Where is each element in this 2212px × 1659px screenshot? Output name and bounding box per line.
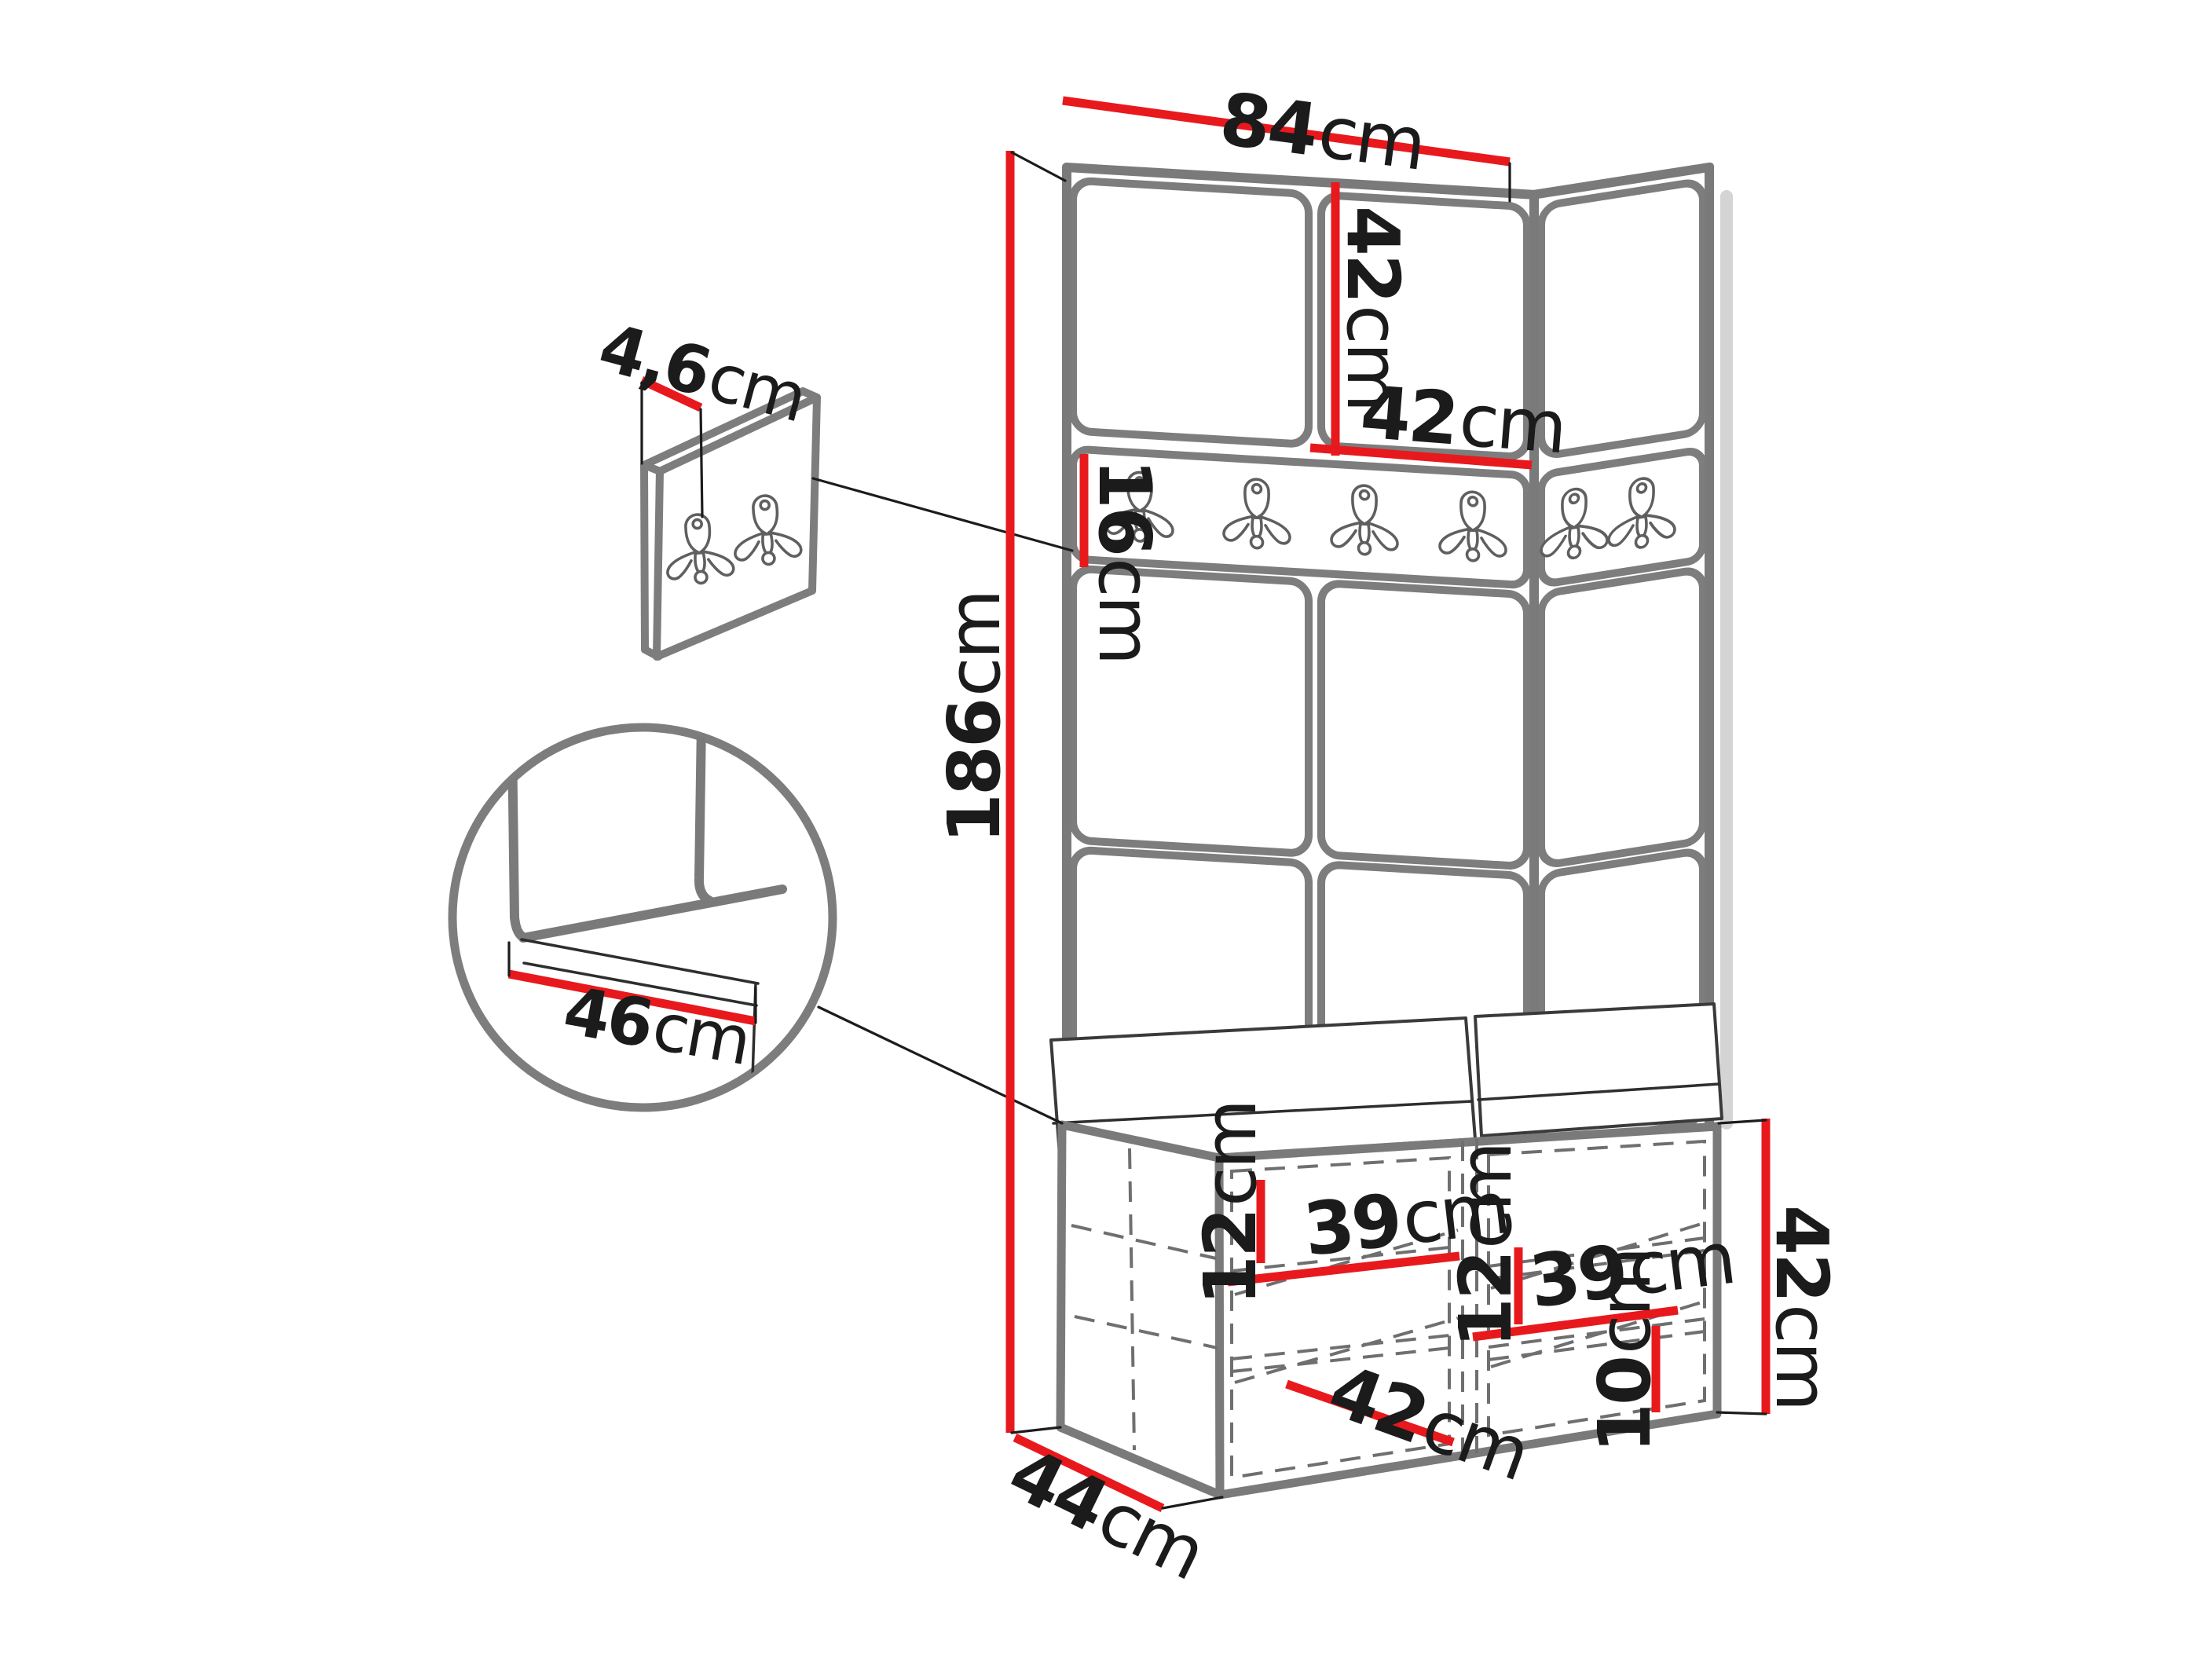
dim-hook-rail-height-label: 16cm (1082, 459, 1166, 663)
pad-mid-right (1321, 583, 1527, 866)
dim-plinth-height-label: 10cm (1583, 1249, 1667, 1453)
dim-total-width-label: 84cm (1215, 77, 1429, 187)
panel-leader-line (813, 478, 1072, 551)
dim-left-shelf-offset-label: 12cm (1188, 1101, 1273, 1306)
wall-front-face (1067, 167, 1534, 1166)
dim-bench-height-label: 42cm (1760, 1205, 1844, 1409)
dim-total-height-label: 186cm (932, 591, 1016, 844)
dim-panel-thickness-label: 4,6cm (591, 309, 813, 437)
dim-right-shelf-offset-label: 12cm (1444, 1144, 1528, 1348)
dim-top-panel-width-label: 42cm (1357, 370, 1568, 470)
seat-cushion-right (1475, 1004, 1722, 1136)
pad-top-left (1073, 181, 1309, 445)
pad-side-mid (1541, 569, 1703, 866)
circle-leader-line (819, 1007, 1062, 1123)
furniture-dimension-diagram: 84cm 42cm 42cm 16cm 186cm 4,6cm 46cm 12c… (0, 0, 2212, 1659)
